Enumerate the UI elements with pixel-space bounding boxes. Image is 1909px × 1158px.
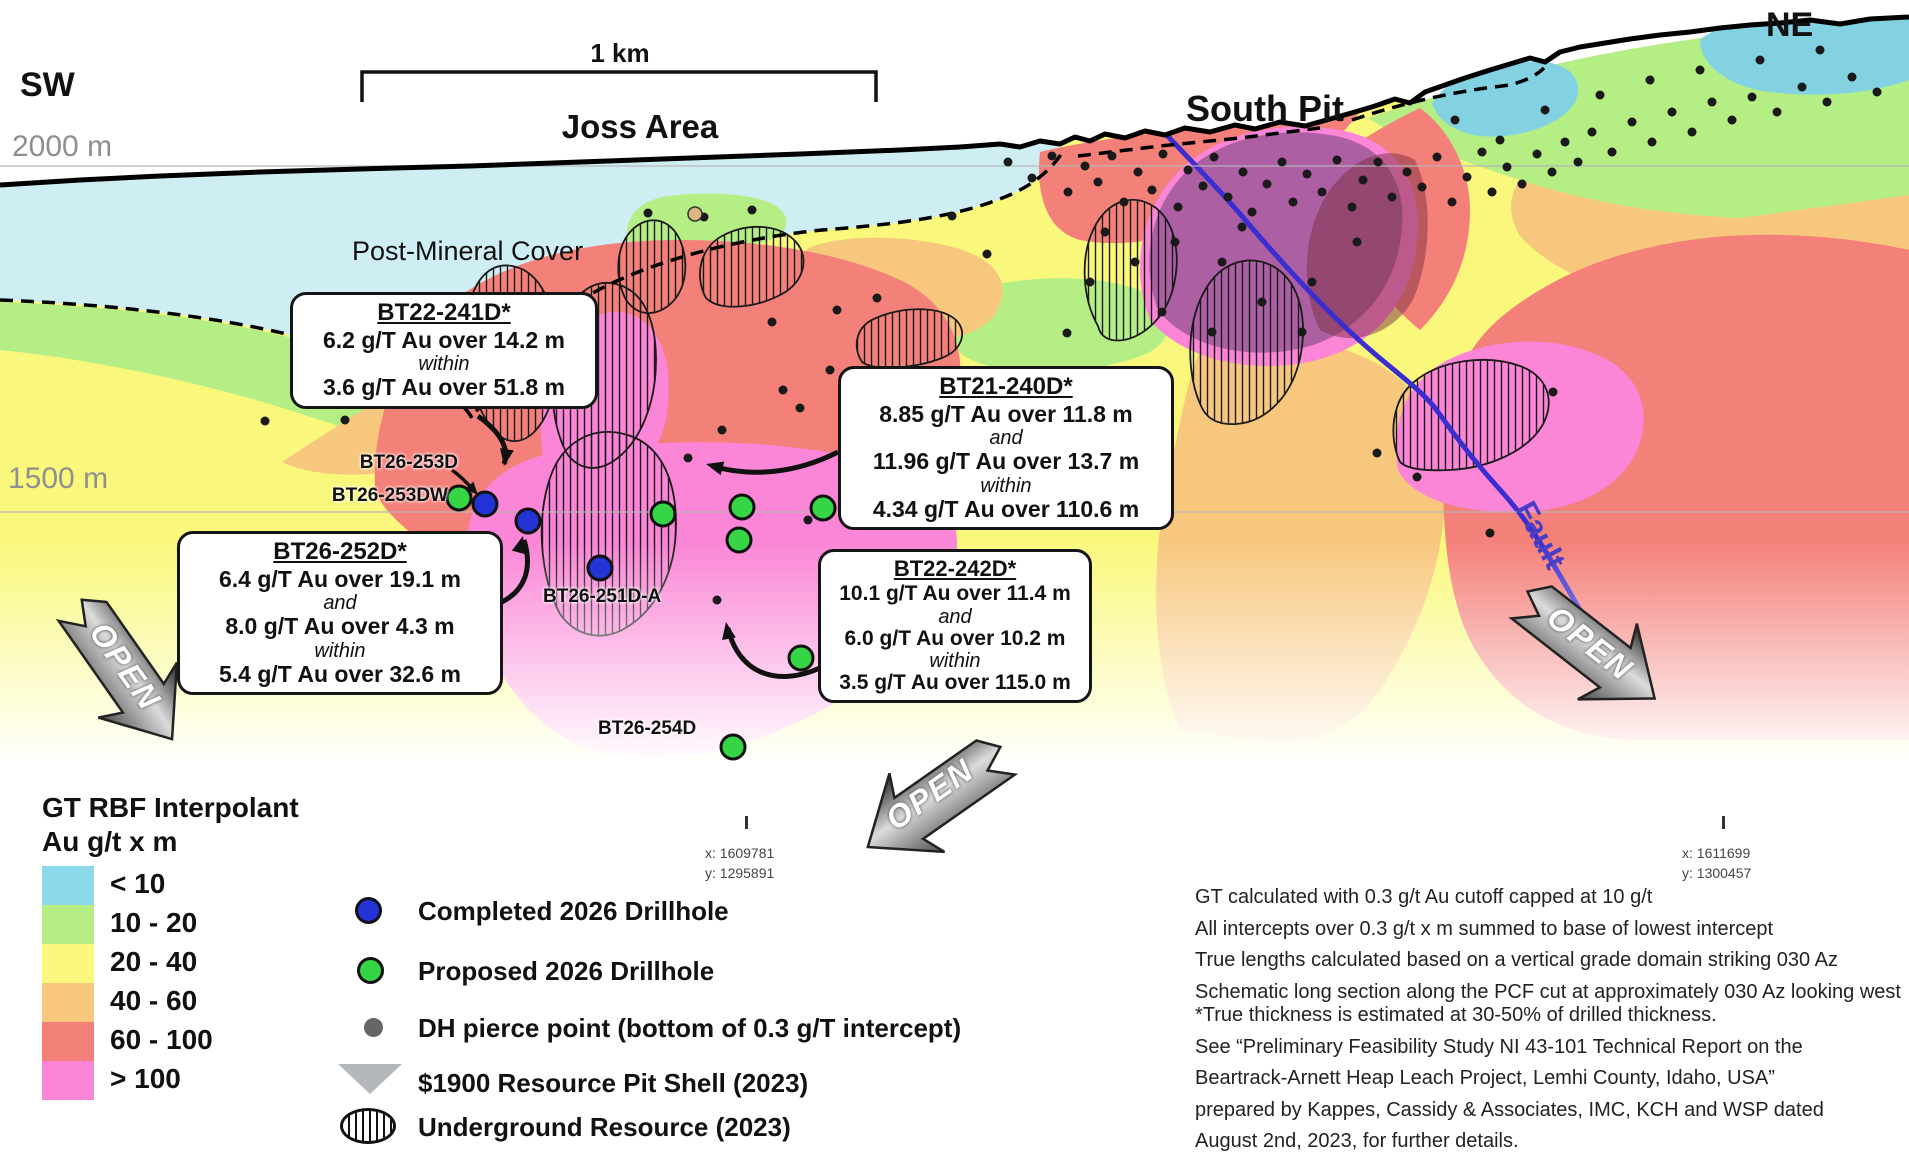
pierce-point-dot (1158, 308, 1167, 317)
pierce-point-dot (1171, 238, 1180, 247)
callout-line: 6.2 g/T Au over 14.2 m (299, 327, 589, 354)
pierce-point-dot (1628, 118, 1637, 127)
pierce-point-dot (644, 209, 653, 218)
callout-connector: within (299, 354, 589, 374)
pierce-point-dot (1028, 174, 1037, 183)
note-line: True lengths calculated based on a verti… (1195, 945, 1901, 977)
pierce-point-dot (1708, 98, 1717, 107)
pierce-point-dot (1120, 198, 1129, 207)
legend-class-label: 10 - 20 (110, 907, 197, 939)
elevation-1500m: 1500 m (8, 462, 108, 496)
pierce-point-dot (684, 454, 693, 463)
completed-drillhole-dot (473, 492, 497, 516)
callout-title: BT26-252D* (186, 538, 494, 566)
pit-shell-icon (338, 1064, 402, 1094)
pierce-point-dot (1373, 449, 1382, 458)
pierce-point-dot (1239, 168, 1248, 177)
pierce-point-dot (1353, 238, 1362, 247)
callout-connector: and (847, 428, 1165, 448)
pierce-point-dot (1696, 66, 1705, 75)
legend-swatch-20-40 (42, 944, 94, 983)
callout-title: BT22-242D* (827, 556, 1083, 582)
callout-line: 8.0 g/T Au over 4.3 m (186, 613, 494, 640)
pierce-point-dot (1548, 168, 1557, 177)
proposed-drillhole-dot (789, 646, 813, 670)
pierce-point-dot (1184, 166, 1193, 175)
pierce-point-dot (1668, 108, 1677, 117)
legend-class-label: > 100 (110, 1063, 181, 1095)
proposed-drillhole-dot (721, 735, 745, 759)
callout-bt26-252d: BT26-252D* 6.4 g/T Au over 19.1 m and 8.… (177, 531, 503, 695)
pierce-point-dot (1848, 73, 1857, 82)
scale-bar-label: 1 km (570, 38, 670, 69)
pierce-point-dot (1298, 328, 1307, 337)
callout-line: 11.96 g/T Au over 13.7 m (847, 448, 1165, 475)
geological-long-section: { "header": { "sw": "SW", "ne": "NE", "j… (0, 0, 1909, 1139)
pierce-point-dot (261, 417, 270, 426)
callout-bt22-242d: BT22-242D* 10.1 g/T Au over 11.4 m and 6… (818, 549, 1092, 703)
legend-item-label: Underground Resource (2023) (418, 1112, 791, 1143)
pierce-point-dot (1148, 186, 1157, 195)
pierce-point-dot (1773, 108, 1782, 117)
pierce-point-dot (1488, 188, 1497, 197)
direction-sw: SW (20, 66, 75, 105)
pierce-point-dot (1823, 98, 1832, 107)
proposed-drillhole-dot (730, 495, 754, 519)
pierce-point-dot (1224, 193, 1233, 202)
tan-pierce-point (688, 207, 702, 221)
note-line: August 2nd, 2023, for further details. (1195, 1126, 1824, 1158)
callout-line: 5.4 g/T Au over 32.6 m (186, 661, 494, 688)
coordinate-marker-1: x: 1609781 y: 1295891 (705, 843, 774, 884)
callout-line: 6.4 g/T Au over 19.1 m (186, 566, 494, 593)
legend-subtitle: Au g/t x m (42, 826, 177, 858)
legend-title: GT RBF Interpolant (42, 792, 299, 824)
pierce-point-dot (1210, 153, 1219, 162)
coordinate-y: y: 1300457 (1682, 863, 1751, 883)
pierce-point-dot (1374, 158, 1383, 167)
pierce-point-dot (1318, 188, 1327, 197)
callout-connector: within (847, 476, 1165, 496)
pierce-point-dot (1608, 148, 1617, 157)
note-line: All intercepts over 0.3 g/t x m summed t… (1195, 914, 1901, 946)
callout-line: 3.5 g/T Au over 115.0 m (827, 671, 1083, 696)
pierce-point-dot (1199, 182, 1208, 191)
pierce-point-dot (713, 596, 722, 605)
pierce-point-dot (1064, 188, 1073, 197)
pierce-point-dot (1134, 168, 1143, 177)
pierce-point-dot (1798, 83, 1807, 92)
callout-bt22-241d: BT22-241D* 6.2 g/T Au over 14.2 m within… (290, 292, 598, 409)
label-bt26-253d: BT26-253D (330, 452, 458, 474)
pierce-point-dot (1208, 328, 1217, 337)
pierce-point-dot (1816, 46, 1825, 55)
notes-block-1: GT calculated with 0.3 g/t Au cutoff cap… (1195, 882, 1901, 1008)
callout-bt21-240d: BT21-240D* 8.85 g/T Au over 11.8 m and 1… (838, 366, 1174, 530)
pierce-point-dot (1348, 203, 1357, 212)
callout-line: 10.1 g/T Au over 11.4 m (827, 582, 1083, 607)
pierce-point-dot (1574, 158, 1583, 167)
pierce-point-dot (1541, 106, 1550, 115)
pierce-point-dot (718, 426, 727, 435)
elevation-2000m: 2000 m (12, 130, 112, 164)
legend-item-label: DH pierce point (bottom of 0.3 g/T inter… (418, 1013, 961, 1044)
proposed-drillhole-dot (651, 502, 675, 526)
pierce-point-dot (1756, 56, 1765, 65)
note-line: Beartrack-Arnett Heap Leach Project, Lem… (1195, 1063, 1824, 1095)
callout-line: 3.6 g/T Au over 51.8 m (299, 374, 589, 401)
pierce-point-dot (1063, 329, 1072, 338)
proposed-drillhole-dot (727, 528, 751, 552)
notes-block-2: *True thickness is estimated at 30-50% o… (1195, 1000, 1824, 1158)
pierce-point-dot (1004, 158, 1013, 167)
legend-class-label: < 10 (110, 868, 165, 900)
pierce-point-dot (1258, 298, 1267, 307)
pierce-point-dot (1388, 193, 1397, 202)
pierce-point-dot (1561, 138, 1570, 147)
pierce-point-dot (768, 318, 777, 327)
pierce-point-dot (873, 294, 882, 303)
completed-drillhole-dot (588, 556, 612, 580)
completed-drillhole-dot (516, 509, 540, 533)
callout-connector: within (827, 651, 1083, 671)
pierce-point-dot (1086, 278, 1095, 287)
coordinate-x: x: 1609781 (705, 843, 774, 863)
coordinate-tick-2 (1722, 816, 1725, 829)
callout-title: BT21-240D* (847, 373, 1165, 401)
label-bt26-254d: BT26-254D (598, 718, 696, 740)
direction-ne: NE (1766, 6, 1813, 45)
pierce-point-dot (1418, 183, 1427, 192)
post-mineral-cover-label: Post-Mineral Cover (352, 236, 583, 267)
legend-class-label: 20 - 40 (110, 946, 197, 978)
label-bt26-251d-a: BT26-251D-A (543, 586, 661, 608)
pierce-point-dot (1748, 93, 1757, 102)
pierce-point-dot (1174, 203, 1183, 212)
legend-swatch-40-60 (42, 983, 94, 1022)
pierce-point-dot (1108, 152, 1117, 161)
pierce-point-dot (983, 250, 992, 259)
pierce-point-dot (1289, 198, 1298, 207)
callout-connector: and (827, 607, 1083, 627)
note-line: *True thickness is estimated at 30-50% o… (1195, 1000, 1824, 1032)
callout-line: 8.85 g/T Au over 11.8 m (847, 401, 1165, 428)
legend-item-label: Completed 2026 Drillhole (418, 896, 729, 927)
pierce-point-dot (1218, 258, 1227, 267)
pierce-point-dot (796, 404, 805, 413)
note-line: GT calculated with 0.3 g/t Au cutoff cap… (1195, 882, 1901, 914)
pierce-point-dot (1496, 136, 1505, 145)
coordinate-marker-2: x: 1611699 y: 1300457 (1682, 843, 1751, 884)
pierce-point-dot (1333, 156, 1342, 165)
pierce-point-dot (779, 386, 788, 395)
pierce-point-dot (948, 212, 957, 221)
pierce-point-dot (1159, 150, 1168, 159)
pierce-point-dot (833, 306, 842, 315)
pierce-point-dot (1549, 388, 1558, 397)
pierce-point-dot (1248, 208, 1257, 217)
pierce-point-dot (1359, 176, 1368, 185)
legend-swatch-gt100 (42, 1061, 94, 1100)
label-bt26-253dw: BT26-253DW (300, 485, 448, 507)
pierce-point-dot (1596, 91, 1605, 100)
pierce-point-dot (826, 366, 835, 375)
pierce-point-dot (1081, 162, 1090, 171)
coordinate-y: y: 1295891 (705, 863, 774, 883)
pierce-point-dot (1518, 180, 1527, 189)
legend-swatch-10-20 (42, 905, 94, 944)
pierce-point-dot (748, 206, 757, 215)
legend-item-label: Proposed 2026 Drillhole (418, 956, 714, 987)
callout-line: 6.0 g/T Au over 10.2 m (827, 627, 1083, 652)
callout-line: 4.34 g/T Au over 110.6 m (847, 496, 1165, 523)
proposed-drillhole-dot (447, 486, 471, 510)
coordinate-x: x: 1611699 (1682, 843, 1751, 863)
pierce-point-dot (1094, 178, 1103, 187)
proposed-drillhole-icon (357, 957, 384, 984)
pierce-point-dot (1303, 170, 1312, 179)
callout-title: BT22-241D* (299, 299, 589, 327)
pierce-point-dot (1873, 88, 1882, 97)
pierce-point-dot (1588, 128, 1597, 137)
pierce-point-dot (1728, 116, 1737, 125)
proposed-drillhole-dot (811, 496, 835, 520)
south-pit-title: South Pit (1160, 88, 1370, 130)
note-line: See “Preliminary Feasibility Study NI 43… (1195, 1032, 1824, 1064)
legend-item-label: $1900 Resource Pit Shell (2023) (418, 1068, 808, 1099)
legend-class-label: 60 - 100 (110, 1024, 213, 1056)
pierce-point-dot (1308, 278, 1317, 287)
callout-connector: within (186, 641, 494, 661)
pierce-point-dot (1048, 152, 1057, 161)
pierce-point-dot (1433, 153, 1442, 162)
pierce-point-dot (1238, 223, 1247, 232)
pierce-point-dot (1131, 258, 1140, 267)
pierce-point-dot (1451, 116, 1460, 125)
pierce-point-icon (364, 1018, 383, 1037)
pierce-point-dot (1478, 148, 1487, 157)
pierce-point-dot (1688, 128, 1697, 137)
coordinate-tick-1 (745, 816, 748, 829)
pierce-point-dot (1646, 76, 1655, 85)
pierce-point-dot (1486, 529, 1495, 538)
joss-area-title: Joss Area (540, 108, 740, 146)
legend-class-label: 40 - 60 (110, 985, 197, 1017)
legend-swatch-60-100 (42, 1022, 94, 1061)
pierce-point-dot (1533, 150, 1542, 159)
pierce-point-dot (1648, 138, 1657, 147)
completed-drillhole-icon (355, 897, 382, 924)
pierce-point-dot (1413, 473, 1422, 482)
note-line: prepared by Kappes, Cassidy & Associates… (1195, 1095, 1824, 1127)
pierce-point-dot (1448, 198, 1457, 207)
pierce-point-dot (1463, 173, 1472, 182)
pierce-point-dot (1503, 163, 1512, 172)
pierce-point-dot (1101, 228, 1110, 237)
pierce-point-dot (1263, 180, 1272, 189)
legend-swatch-lt10 (42, 866, 94, 905)
callout-connector: and (186, 593, 494, 613)
pierce-point-dot (341, 416, 350, 425)
pierce-point-dot (1403, 168, 1412, 177)
pierce-point-dot (1278, 158, 1287, 167)
pierce-point-dot (804, 516, 813, 525)
